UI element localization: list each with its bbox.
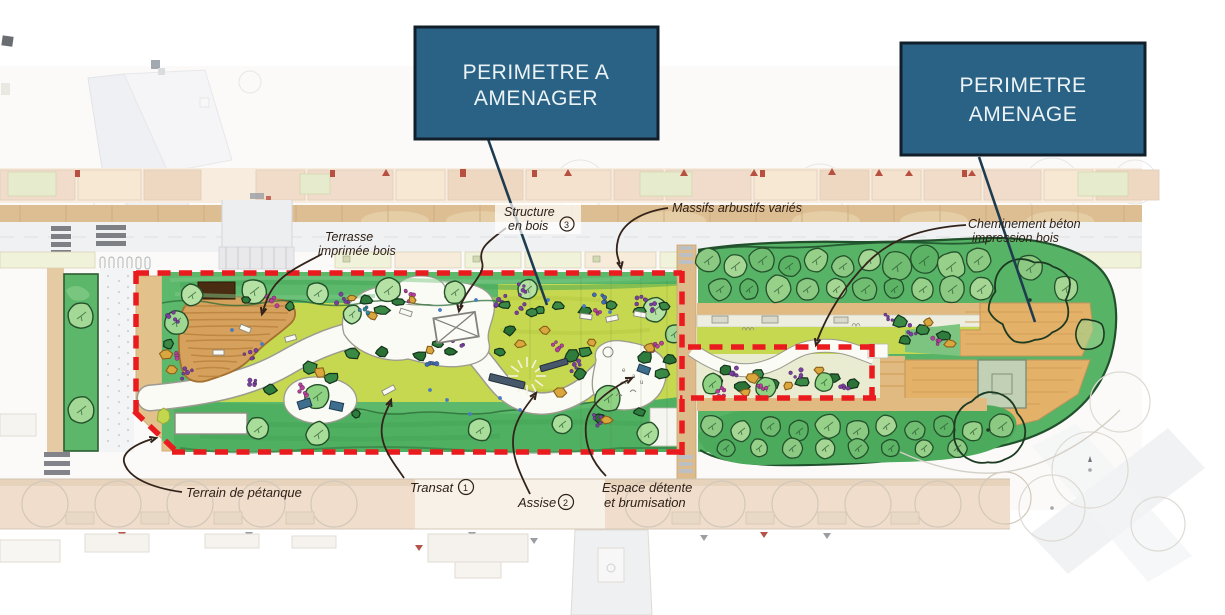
svg-text:PERIMETRE A: PERIMETRE A bbox=[463, 61, 610, 84]
svg-text:3: 3 bbox=[564, 220, 569, 230]
svg-text:Structure: Structure bbox=[504, 205, 555, 219]
svg-text:Terrain de pétanque: Terrain de pétanque bbox=[186, 485, 302, 500]
svg-text:Cheminement béton: Cheminement béton bbox=[968, 217, 1081, 231]
svg-text:en bois: en bois bbox=[508, 219, 548, 233]
svg-text:Terrasse: Terrasse bbox=[325, 230, 373, 244]
svg-text:AMENAGER: AMENAGER bbox=[474, 87, 598, 110]
svg-text:Transat: Transat bbox=[410, 480, 454, 495]
svg-text:Massifs arbustifs variés: Massifs arbustifs variés bbox=[672, 201, 802, 215]
svg-text:et brumisation: et brumisation bbox=[604, 495, 686, 510]
svg-text:Espace détente: Espace détente bbox=[602, 480, 692, 495]
svg-text:impression bois: impression bois bbox=[972, 231, 1059, 245]
svg-text:Assise: Assise bbox=[517, 495, 556, 510]
svg-text:PERIMETRE: PERIMETRE bbox=[959, 74, 1086, 97]
svg-text:2: 2 bbox=[563, 498, 568, 508]
svg-text:AMENAGE: AMENAGE bbox=[969, 103, 1078, 126]
svg-text:imprimée bois: imprimée bois bbox=[318, 244, 396, 258]
svg-text:1: 1 bbox=[463, 483, 468, 493]
